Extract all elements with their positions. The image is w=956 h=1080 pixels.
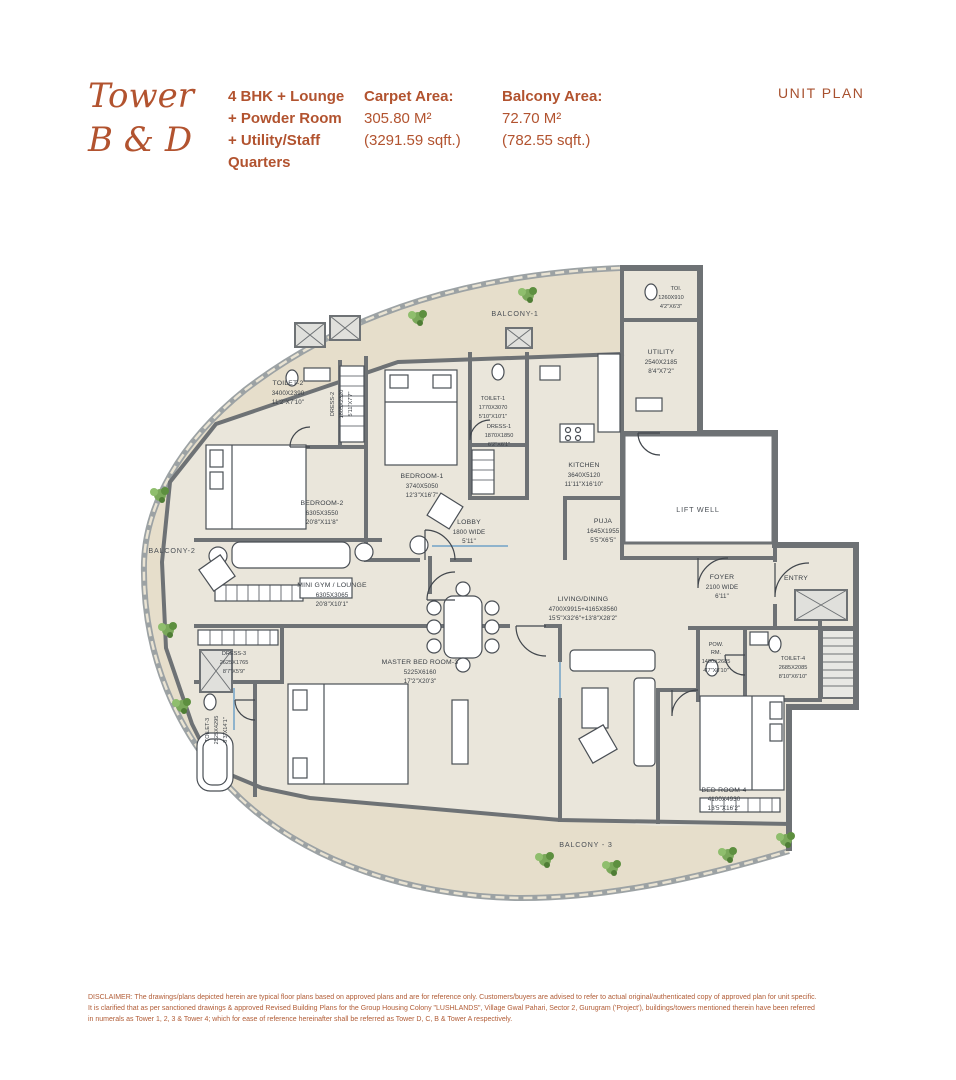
svg-text:3640X5120: 3640X5120 xyxy=(568,472,601,479)
svg-text:17'2"X20'3": 17'2"X20'3" xyxy=(404,678,437,685)
vanity xyxy=(304,368,330,381)
svg-text:TOILET-1: TOILET-1 xyxy=(481,396,505,402)
svg-text:5'10"X10'1": 5'10"X10'1" xyxy=(479,414,508,420)
dress3-shelves xyxy=(198,630,278,645)
room-label-bedroom4: BED ROOM-4 4100X4930 13'5"X16'2" xyxy=(701,787,746,812)
basin xyxy=(750,632,768,645)
sofa xyxy=(209,542,373,568)
bed xyxy=(700,696,784,790)
room-label-bedroom1: BEDROOM-1 3740X5050 12'3"X16'7" xyxy=(401,473,444,499)
utility-counter xyxy=(636,398,662,411)
svg-text:2625X1765: 2625X1765 xyxy=(220,660,249,666)
balcony-2-label: BALCONY-2 xyxy=(148,546,195,555)
svg-text:4'7"X8'10": 4'7"X8'10" xyxy=(703,668,728,674)
bed xyxy=(385,370,457,465)
svg-text:1400X2685: 1400X2685 xyxy=(702,659,731,665)
disclaimer-line: in numerals as Tower 1, 2, 3 & Tower 4; … xyxy=(88,1014,888,1025)
room-label-kitchen: KITCHEN 3640X5120 11'11"X16'10" xyxy=(565,462,604,488)
svg-text:2525X4295: 2525X4295 xyxy=(214,716,220,745)
svg-text:1870X1850: 1870X1850 xyxy=(485,433,514,439)
svg-text:LOBBY: LOBBY xyxy=(457,519,481,526)
svg-text:PUJA: PUJA xyxy=(594,518,612,525)
svg-text:KITCHEN: KITCHEN xyxy=(568,462,599,469)
svg-text:8'4"X7'2": 8'4"X7'2" xyxy=(648,368,674,375)
lift-well xyxy=(624,435,773,543)
svg-text:1260X910: 1260X910 xyxy=(658,295,684,301)
svg-text:20'8"X10'1": 20'8"X10'1" xyxy=(316,601,349,608)
svg-text:1645X1955: 1645X1955 xyxy=(587,528,620,535)
wc xyxy=(769,636,781,652)
svg-text:8'3"X14'1": 8'3"X14'1" xyxy=(223,717,229,742)
wc xyxy=(645,284,657,300)
svg-text:BEDROOM-2: BEDROOM-2 xyxy=(301,500,344,507)
room-label-dress2: DRESS-2 1805X2320 5'11"X7'7" xyxy=(330,390,354,419)
room-label-dress1: DRESS-1 1870X1850 6'2"X6'1" xyxy=(485,424,514,448)
svg-text:LIVING/DINING: LIVING/DINING xyxy=(558,596,609,603)
balcony-1-label: BALCONY-1 xyxy=(491,309,538,318)
svg-text:DRESS-3: DRESS-3 xyxy=(222,651,246,657)
floor-plan: BALCONY-1 BALCONY-2 BALCONY - 3 LIFT WEL… xyxy=(0,0,956,1080)
room-label-dress3: DRESS-3 2625X1765 8'7"X5'9" xyxy=(220,651,249,675)
svg-text:5225X6160: 5225X6160 xyxy=(404,669,437,676)
svg-text:1800 WIDE: 1800 WIDE xyxy=(453,529,486,536)
shaft-box xyxy=(795,590,847,620)
wc xyxy=(492,364,504,380)
room-label-toilet1: TOILET-1 1770X3070 5'10"X10'1" xyxy=(479,396,508,420)
svg-text:11'2"X7'10": 11'2"X7'10" xyxy=(272,399,304,406)
wardrobe xyxy=(215,585,303,601)
svg-text:UTILITY: UTILITY xyxy=(648,349,675,356)
svg-text:12'3"X16'7": 12'3"X16'7" xyxy=(406,492,439,499)
svg-text:20'8"X11'8": 20'8"X11'8" xyxy=(306,519,338,526)
staircase xyxy=(822,630,854,698)
svg-text:MASTER BED ROOM-3: MASTER BED ROOM-3 xyxy=(382,659,459,666)
svg-text:FOYER: FOYER xyxy=(710,574,734,581)
svg-text:MINI GYM / LOUNGE: MINI GYM / LOUNGE xyxy=(297,582,367,589)
svg-text:TOILET-4: TOILET-4 xyxy=(781,656,805,662)
svg-text:5'11"X7'7": 5'11"X7'7" xyxy=(348,392,354,417)
svg-text:3400X2390: 3400X2390 xyxy=(272,390,305,397)
svg-text:6'2"X6'1": 6'2"X6'1" xyxy=(488,442,510,448)
svg-text:1805X2320: 1805X2320 xyxy=(339,390,345,419)
tv-console xyxy=(452,700,468,764)
coffee-table xyxy=(582,688,608,728)
svg-text:5'5"X6'5": 5'5"X6'5" xyxy=(590,537,616,544)
svg-text:TOILET-3: TOILET-3 xyxy=(205,718,211,742)
svg-text:4700X9915+4165X8560: 4700X9915+4165X8560 xyxy=(549,606,618,613)
svg-text:8'7"X5'9": 8'7"X5'9" xyxy=(223,669,245,675)
svg-text:2100 WIDE: 2100 WIDE xyxy=(706,584,739,591)
svg-text:6'11": 6'11" xyxy=(715,593,729,600)
room-label-toilet4: TOILET-4 2685X2085 8'10"X6'10" xyxy=(779,656,808,680)
room-label-bedroom2: BEDROOM-2 6305X3550 20'8"X11'8" xyxy=(301,500,344,526)
shaft-box xyxy=(330,316,360,340)
bed xyxy=(206,445,306,529)
svg-text:4'2"X6'3": 4'2"X6'3" xyxy=(660,304,682,310)
svg-text:8'10"X6'10": 8'10"X6'10" xyxy=(779,674,808,680)
entry-label: ENTRY xyxy=(784,575,808,582)
svg-text:1770X3070: 1770X3070 xyxy=(479,405,508,411)
room-label-living: LIVING/DINING 4700X9915+4165X8560 15'5"X… xyxy=(549,596,618,622)
svg-text:6305X3065: 6305X3065 xyxy=(316,592,349,599)
svg-text:DRESS-1: DRESS-1 xyxy=(487,424,511,430)
svg-text:6305X3550: 6305X3550 xyxy=(306,510,339,517)
svg-text:3740X5050: 3740X5050 xyxy=(406,483,439,490)
svg-text:4100X4930: 4100X4930 xyxy=(708,796,741,803)
svg-text:5'11": 5'11" xyxy=(462,538,476,545)
svg-text:BEDROOM-1: BEDROOM-1 xyxy=(401,473,444,480)
svg-text:2685X2085: 2685X2085 xyxy=(779,665,808,671)
svg-text:BED ROOM-4: BED ROOM-4 xyxy=(701,787,746,794)
bed xyxy=(288,684,408,784)
svg-text:13'5"X16'2": 13'5"X16'2" xyxy=(708,805,741,812)
disclaimer-line: DISCLAIMER: The drawings/plans depicted … xyxy=(88,992,888,1003)
svg-text:POW.: POW. xyxy=(709,642,724,648)
disclaimer-line: It is clarified that as per sanctioned d… xyxy=(88,1003,888,1014)
lift-well-label: LIFT WELL xyxy=(676,505,719,514)
svg-text:DRESS-2: DRESS-2 xyxy=(330,392,336,416)
svg-text:TOI.: TOI. xyxy=(671,286,682,292)
svg-text:11'11"X16'10": 11'11"X16'10" xyxy=(565,481,604,488)
svg-text:TOILET-2: TOILET-2 xyxy=(273,380,304,387)
wc xyxy=(204,694,216,710)
shaft-box xyxy=(506,328,532,348)
dress1-shelves xyxy=(472,450,494,494)
room-label-toilet2: TOILET-2 3400X2390 11'2"X7'10" xyxy=(272,380,305,406)
room-label-toilet3: TOILET-3 2525X4295 8'3"X14'1" xyxy=(205,716,229,745)
svg-text:15'5"X32'6"+13'8"X28'2": 15'5"X32'6"+13'8"X28'2" xyxy=(549,615,618,622)
svg-text:RM.: RM. xyxy=(711,650,722,656)
shaft-box xyxy=(295,323,325,347)
disclaimer: DISCLAIMER: The drawings/plans depicted … xyxy=(88,992,888,1025)
svg-text:2540X2185: 2540X2185 xyxy=(645,359,678,366)
balcony-3-label: BALCONY - 3 xyxy=(559,840,612,849)
room-label-utility: UTILITY 2540X2185 8'4"X7'2" xyxy=(645,349,678,375)
